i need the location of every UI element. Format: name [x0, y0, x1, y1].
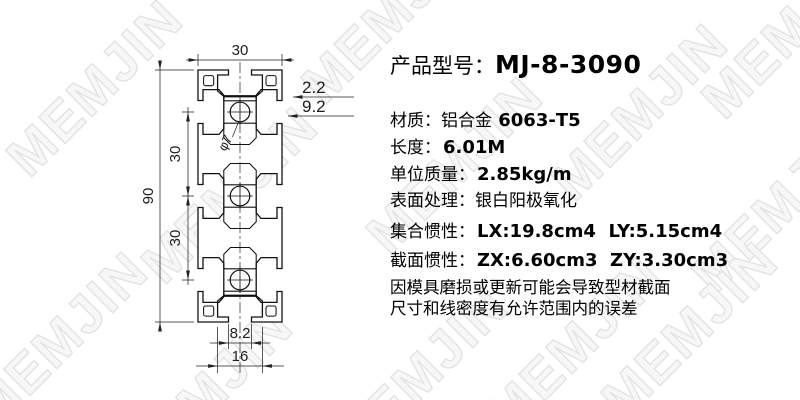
disclaimer-line-1: 因模具磨损或更新可能会导致型材截面 [390, 277, 671, 298]
dim-slot-depth: 9.2 [302, 97, 326, 116]
spec-panel: 产品型号：MJ-8-3090 材质：铝合金 6063-T5 长度：6.01M 单… [390, 0, 795, 400]
spec-row-inertia-l: 集合惯性：LX:19.8cm4 LY:5.15cm4 [390, 217, 722, 242]
spec-row-unit-mass: 单位质量：2.85kg/m [390, 160, 572, 185]
spec-label: 单位质量： [390, 165, 475, 184]
profile-cross-section-svg: 309030302.29.2φ78.216 [130, 15, 380, 395]
spec-value-bold: 6063-T5 [498, 110, 580, 131]
spec-value-bold: 2.85kg/m [477, 164, 572, 185]
dimension-arrow [282, 58, 292, 62]
dimension-arrow [186, 187, 190, 197]
spec-label: 集合惯性： [390, 222, 475, 241]
spec-row-surface: 表面处理：银白阳极氧化 [390, 186, 579, 211]
dim-overall-height: 90 [140, 188, 157, 205]
product-title: 产品型号：MJ-8-3090 [390, 50, 641, 80]
page-root: MEMJINMEMJINMEMJINMEMJINMEMJINMEMJINMEMJ… [0, 0, 800, 400]
spec-label: 材质： [390, 111, 441, 130]
spec-row-inertia-z: 截面惯性：ZX:6.60cm3 ZY:3.30cm3 [390, 246, 728, 271]
spec-value-bold: ZX:6.60cm3 ZY:3.30cm3 [477, 250, 728, 271]
spec-row-length: 长度：6.01M [390, 133, 505, 158]
dimension-arrow [186, 271, 190, 281]
dim-lip-thickness: 2.2 [302, 78, 326, 97]
product-title-label: 产品型号： [390, 54, 495, 78]
disclaimer: 因模具磨损或更新可能会导致型材截面 尺寸和线密度有允许范围内的误差 [390, 277, 671, 319]
spec-value-bold: 6.01M [443, 137, 505, 158]
dim-slot-opening: 8.2 [230, 325, 251, 342]
dim-slot-cavity: 16 [232, 348, 249, 365]
product-title-value: MJ-8-3090 [495, 50, 641, 79]
technical-drawing: 309030302.29.2φ78.216 [130, 15, 380, 395]
dimension-arrow [208, 364, 218, 368]
spec-label: 长度： [390, 138, 441, 157]
dimension-arrow [252, 341, 262, 345]
dimension-arrow [189, 58, 199, 62]
dim-overall-width: 30 [232, 42, 249, 59]
dimension-arrow [158, 61, 162, 71]
dimension-arrow [186, 112, 190, 122]
spec-label: 截面惯性： [390, 251, 475, 270]
dim-pitch-lower: 30 [167, 230, 184, 247]
spec-row-material: 材质：铝合金 6063-T5 [390, 106, 581, 131]
spec-value-plain: 银白阳极氧化 [475, 191, 577, 210]
dimension-arrow [158, 322, 162, 332]
spec-value-bold: LX:19.8cm4 LY:5.15cm4 [477, 221, 722, 242]
dimension-arrow [288, 114, 298, 118]
dimension-arrow [262, 364, 272, 368]
disclaimer-line-2: 尺寸和线密度有允许范围内的误差 [390, 298, 671, 319]
dimension-arrow [186, 196, 190, 206]
spec-label: 表面处理： [390, 191, 475, 210]
dimension-arrow [219, 341, 229, 345]
spec-value-plain: 铝合金 [441, 111, 496, 130]
dim-pitch-upper: 30 [167, 146, 184, 163]
